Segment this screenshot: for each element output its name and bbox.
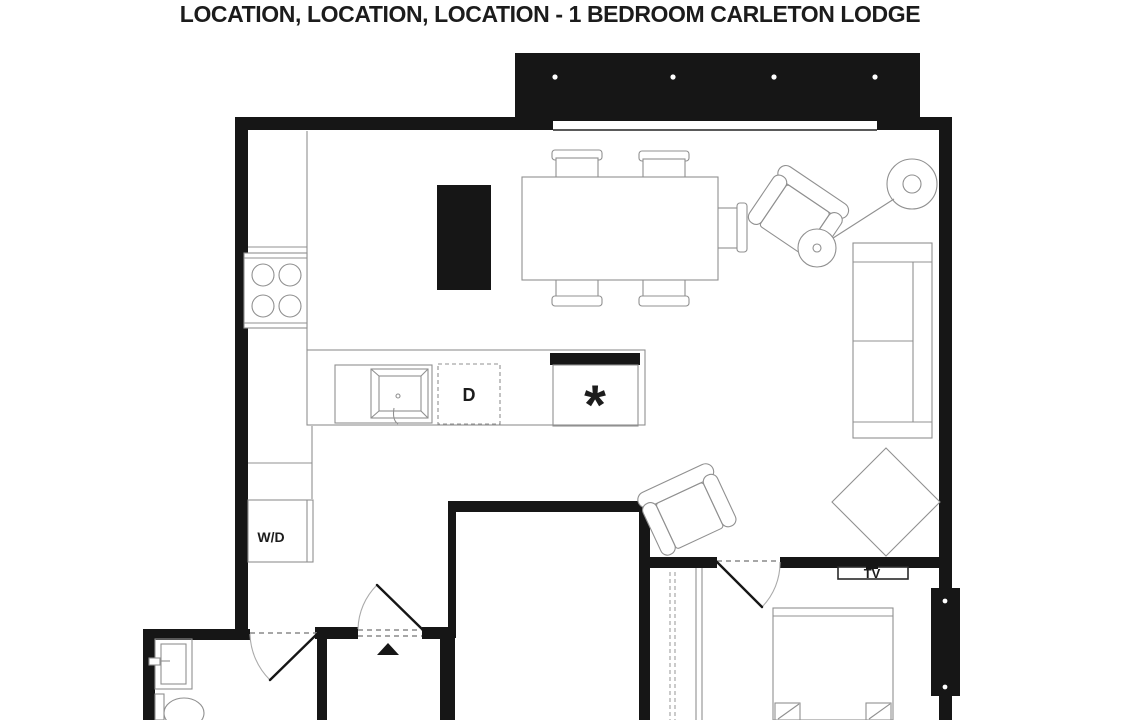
toilet — [155, 694, 204, 720]
wall-bathroom-top — [143, 629, 250, 640]
wall-interior-left — [448, 501, 456, 638]
wall-left — [235, 117, 248, 640]
bathroom-door — [250, 633, 317, 680]
wall-top-left — [235, 117, 553, 130]
wall-bedroom-left — [648, 557, 717, 568]
wall-interior-top — [448, 501, 650, 512]
range-appliance: * — [550, 353, 640, 436]
wall-bathroom-left — [143, 629, 155, 720]
entry-direction-arrow — [377, 643, 399, 655]
window-post-dot — [943, 685, 948, 690]
wall-hall-bottom-right — [422, 627, 455, 639]
balcony-sliding-door — [553, 121, 877, 130]
sink-faucet — [394, 408, 399, 424]
window-frame — [931, 588, 960, 696]
sofa — [853, 243, 932, 438]
balcony-deck — [515, 53, 920, 122]
dishwasher-label: D — [463, 385, 476, 405]
toilet-bowl — [164, 698, 204, 720]
kitchen-sink — [335, 365, 432, 424]
entry-door-leaf — [377, 585, 422, 629]
kitchen-peninsula: D * — [307, 350, 645, 436]
doors — [250, 561, 780, 680]
balcony-post-dot — [670, 74, 675, 79]
balcony-post-dot — [552, 74, 557, 79]
balcony — [515, 53, 920, 122]
toilet-tank — [155, 694, 164, 720]
wall-below-entry — [440, 637, 455, 720]
bedroom-door — [717, 561, 780, 607]
dining-set — [522, 150, 747, 306]
dining-chair — [716, 203, 747, 252]
window-post-dot — [943, 599, 948, 604]
bathroom-vanity — [149, 639, 192, 689]
dining-table — [522, 177, 718, 280]
dining-chair — [639, 279, 689, 306]
bedroom — [670, 568, 893, 720]
dining-chair — [552, 279, 602, 306]
balcony-post-dot — [872, 74, 877, 79]
wall-bathroom-right — [317, 637, 327, 720]
bedroom-door-leaf — [717, 562, 762, 607]
balcony-post-dot — [771, 74, 776, 79]
kitchen-island — [437, 185, 491, 290]
entry-door-swing — [358, 585, 377, 629]
bedroom-door-swing — [762, 562, 780, 607]
floor-plan-page: LOCATION, LOCATION, LOCATION - 1 BEDROOM… — [0, 0, 1139, 720]
kitchen-stove — [244, 253, 307, 328]
bathroom — [149, 639, 204, 720]
dining-chair — [552, 150, 602, 178]
entry-door — [358, 585, 422, 655]
counter-backsplash-bar — [550, 353, 640, 365]
bathroom-door-leaf — [270, 634, 317, 680]
bathroom-door-swing — [250, 634, 270, 680]
vanity-faucet — [149, 658, 160, 665]
washer-dryer: W/D — [248, 500, 313, 562]
tv-label: TV — [864, 566, 881, 581]
side-table-diamond — [832, 448, 940, 556]
bed — [773, 608, 893, 720]
wall-interior-vertical — [639, 501, 650, 720]
appliance-asterisk-icon: * — [584, 373, 606, 436]
armchair — [635, 461, 738, 557]
dishwasher: D — [438, 364, 500, 424]
sink-drain — [396, 394, 400, 398]
sliding-door-opening — [553, 121, 877, 130]
lamp-shade — [798, 229, 836, 267]
bedroom-window-marker — [931, 588, 960, 696]
washer-dryer-label: W/D — [257, 529, 284, 545]
floor-plan-drawing: D * W/D — [0, 0, 1139, 720]
dining-chair — [639, 151, 689, 178]
